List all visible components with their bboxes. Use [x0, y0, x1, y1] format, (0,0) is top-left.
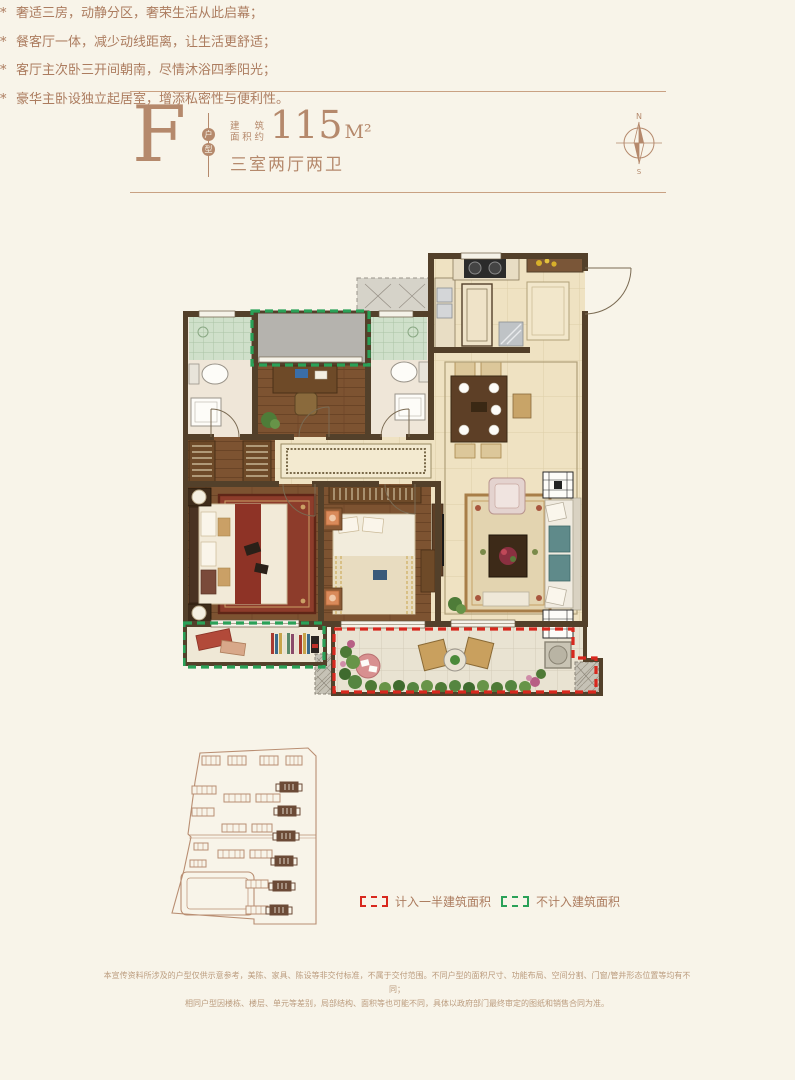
feature-marker: *: [0, 86, 16, 115]
disclaimer-line: 本宣传资料所涉及的户型仅供示意参考，美陈、家具、陈设等非交付标准，不属于交付范围…: [97, 969, 697, 997]
header-top-rule: [130, 91, 666, 92]
feature-item: *餐客厅一体，减少动线距离，让生活更舒适；: [0, 29, 795, 58]
feature-marker: *: [0, 57, 16, 86]
compass-north-label: N: [636, 112, 642, 121]
header-bottom-rule: [130, 192, 666, 193]
unit-type-char: 型: [202, 143, 215, 156]
feature-item: *奢适三房，动静分区，奢荣生活从此启幕；: [0, 0, 795, 29]
disclaimer: 本宣传资料所涉及的户型仅供示意参考，美陈、家具、陈设等非交付标准，不属于交付范围…: [97, 969, 697, 1011]
excluded-area-legend-swatch: [501, 896, 529, 907]
feature-marker: *: [0, 0, 16, 29]
half-area-legend-label: 计入一半建筑面积: [395, 893, 491, 910]
excluded-area-legend-label: 不计入建筑面积: [536, 893, 620, 910]
area-unit: M²: [345, 121, 372, 143]
area-prefix-label: 建筑 面积约: [230, 121, 264, 143]
feature-marker: *: [0, 29, 16, 58]
unit-type-char: 户: [202, 128, 215, 141]
compass-icon: N S: [616, 110, 662, 180]
stairwell: [357, 278, 431, 314]
layout-description: 三室两厅两卫: [230, 150, 344, 175]
feature-item: *客厅主次卧三开间朝南，尽情沐浴四季阳光；: [0, 57, 795, 86]
area-value: 115: [270, 106, 343, 144]
floor-plan: [183, 252, 638, 702]
unit-letter: F: [132, 96, 186, 174]
legend-half-area: 计入一半建筑面积: [360, 893, 491, 910]
area-figure: 115 M²: [270, 106, 372, 144]
master-bedroom: [187, 488, 315, 622]
feature-list: *奢适三房，动静分区，奢荣生活从此启幕； *餐客厅一体，减少动线距离，让生活更舒…: [0, 0, 795, 114]
legend-excluded-area: 不计入建筑面积: [501, 893, 620, 910]
compass-south-label: S: [637, 168, 642, 176]
half-area-legend-swatch: [360, 896, 388, 907]
study-bay-window: [253, 312, 368, 364]
site-plan: [150, 740, 340, 940]
disclaimer-line: 相同户型因楼栋、楼层、单元等差别，局部结构、面积等也可能不同，具体以政府部门最终…: [97, 997, 697, 1011]
unit-type-divider: 户 型: [201, 113, 216, 177]
